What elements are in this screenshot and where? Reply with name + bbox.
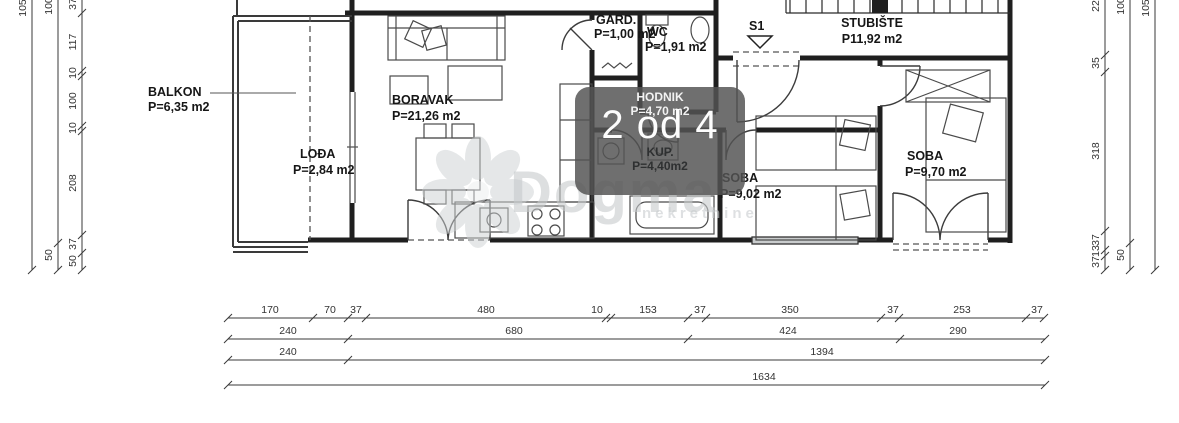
balkon-area: P=6,35 m2	[148, 100, 210, 114]
dim: 480	[477, 304, 495, 316]
dim: 350	[781, 304, 799, 316]
dim: 318	[1090, 142, 1102, 160]
dim: 10	[591, 304, 603, 316]
dim: 117	[67, 33, 79, 50]
dim: 37	[1090, 234, 1102, 246]
dim: 50	[67, 255, 79, 267]
balcony-railing	[233, 0, 352, 252]
dim: 424	[779, 325, 797, 337]
dim: 153	[639, 304, 657, 316]
entrance-arrow-icon	[748, 36, 772, 48]
dim: 13	[1090, 245, 1102, 257]
dim: 10	[67, 122, 79, 134]
dim: 290	[949, 325, 967, 337]
dim: 70	[324, 304, 336, 316]
soba2-door	[880, 66, 920, 106]
boravak-area: P=21,26 m2	[392, 109, 461, 123]
sofa	[388, 16, 505, 60]
soba2-door-threshold	[893, 244, 988, 250]
gard-name: GARD.	[596, 13, 636, 27]
dim: 208	[67, 174, 79, 192]
dim: 105	[17, 0, 29, 17]
entrance-threshold	[733, 52, 800, 66]
dim: 37	[694, 304, 706, 316]
wall-top	[345, 0, 716, 13]
dim: 35	[1090, 57, 1102, 69]
dim: 50	[43, 249, 55, 261]
soba2-name: SOBA	[907, 149, 943, 163]
entrance-label: S1	[749, 19, 764, 33]
lodja-name: LOĐA	[300, 147, 335, 161]
balkon-name: BALKON	[148, 85, 201, 99]
stubiste-name: STUBIŠTE	[841, 15, 903, 30]
photo-counter-text: 2 od 4	[575, 103, 745, 148]
stair-wall-block	[872, 0, 888, 13]
dim: 22	[1090, 0, 1102, 12]
gard-rod-symbol	[602, 63, 632, 68]
soba1-beds	[756, 116, 876, 240]
kup-area: P=4,40m2	[575, 159, 745, 173]
wc-area: P=1,91 m2	[645, 40, 707, 54]
stubiste-area: P11,92 m2	[842, 32, 903, 46]
dim: 170	[261, 304, 279, 316]
dim: 37	[67, 0, 79, 10]
side-table	[448, 66, 502, 100]
boravak-name: BORAVAK	[392, 93, 453, 107]
dim: 37	[350, 304, 362, 316]
kup-name: KUP.	[575, 145, 745, 159]
dim: 100	[1115, 0, 1127, 15]
dim: 50	[1115, 249, 1127, 261]
floorplan-image: Dogma nekretnine BALKON P=6,35 m2 LOĐA P…	[0, 0, 1179, 423]
dim: 240	[279, 325, 297, 337]
dim: 37	[1090, 256, 1102, 268]
dim: 10	[67, 67, 79, 79]
gard-door	[562, 20, 592, 50]
dim: 37	[67, 238, 79, 250]
entrance-door	[737, 60, 799, 122]
dim: 100	[43, 0, 55, 15]
dim: 253	[953, 304, 971, 316]
dim: 240	[279, 346, 297, 358]
toilet	[646, 15, 668, 25]
soba2-french-door	[893, 193, 988, 240]
dim: 37	[887, 304, 899, 316]
stairs	[786, 0, 1010, 13]
dim: 680	[505, 325, 523, 337]
dim: 105	[1140, 0, 1152, 17]
kup-label: KUP. P=4,40m2	[575, 145, 745, 173]
right-chains	[1101, 0, 1159, 274]
boravak-window	[347, 92, 358, 203]
dim: 1634	[752, 371, 776, 383]
lodja-area: P=2,84 m2	[293, 163, 355, 177]
soba2-area: P=9,70 m2	[905, 165, 967, 179]
hodnik-name: HODNIK	[575, 90, 745, 104]
watermark-tagline: nekretnine	[642, 205, 758, 222]
soba2-wardrobe	[906, 70, 990, 102]
photo-counter-overlay: HODNIK P=4,70 m2 2 od 4 KUP. P=4,40m2	[575, 87, 745, 195]
wc-name: WC	[647, 25, 668, 39]
dim: 1394	[810, 346, 834, 358]
dim: 100	[67, 92, 79, 110]
dim: 37	[1031, 304, 1043, 316]
